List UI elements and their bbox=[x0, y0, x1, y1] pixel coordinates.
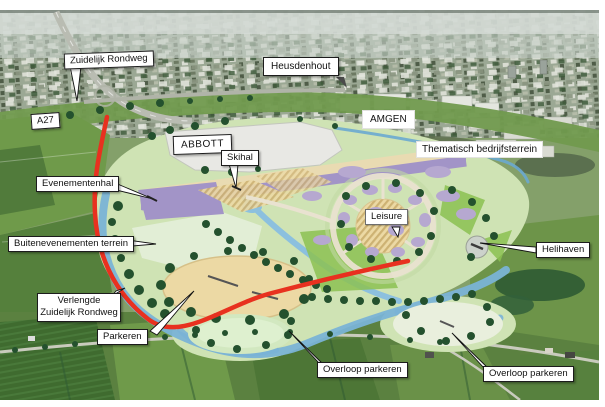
label-leisure: Leisure bbox=[365, 209, 408, 225]
label-evenementenhal: Evenementenhal bbox=[36, 176, 119, 192]
label-verlengde-zuidelijk-rondweg: Verlengde Zuidelijk Rondweg bbox=[37, 293, 121, 322]
label-overloop-parkeren-right: Overloop parkeren bbox=[483, 366, 574, 382]
verlengde-line1: Verlengde bbox=[58, 295, 101, 306]
verlengde-line2: Zuidelijk Rondweg bbox=[40, 307, 118, 318]
label-buitenevenementen-terrein: Buitenevenementen terrein bbox=[8, 236, 134, 252]
label-a27: A27 bbox=[30, 112, 60, 130]
label-parkeren: Parkeren bbox=[97, 329, 148, 345]
label-helihaven: Helihaven bbox=[536, 242, 590, 258]
aerial-map: Zuidelijk Rondweg A27 Heusdenhout ABBOTT… bbox=[0, 0, 605, 407]
label-skihal: Skihal bbox=[221, 150, 259, 166]
label-overloop-parkeren-left: Overloop parkeren bbox=[317, 362, 408, 378]
label-thematisch-bedrijfsterrein: Thematisch bedrijfsterrein bbox=[416, 141, 543, 158]
label-zuidelijk-rondweg: Zuidelijk Rondweg bbox=[64, 50, 154, 69]
label-heusdenhout: Heusdenhout bbox=[263, 57, 339, 76]
label-amgen: AMGEN bbox=[362, 110, 415, 129]
